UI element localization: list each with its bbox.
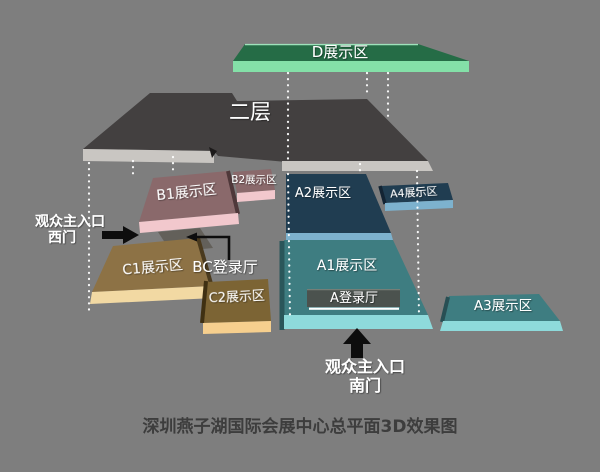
caption-title: 深圳燕子湖国际会展中心总平面3D效果图 bbox=[143, 416, 458, 437]
a3-front-face bbox=[440, 321, 563, 331]
a1-label: A1展示区 bbox=[317, 258, 377, 274]
bc-lobby-label: BC登录厅 bbox=[192, 258, 258, 276]
south-entrance-label-line1: 观众主入口 bbox=[325, 357, 405, 376]
site-plan-3d-render: D展示区 二层 B1展示区 B2展示区 A2展示区 A4展示区 A1展示区 A登… bbox=[0, 0, 600, 472]
a-lobby-underline bbox=[309, 308, 399, 310]
second-floor-front-left bbox=[83, 149, 214, 163]
a2-label: A2展示区 bbox=[295, 186, 351, 201]
b1-hall-slab bbox=[139, 171, 239, 233]
second-floor-label: 二层 bbox=[229, 100, 271, 124]
c2-hall-slab bbox=[202, 279, 271, 334]
d-hall-front-face bbox=[233, 61, 469, 72]
west-entrance-label-line2: 西门 bbox=[48, 229, 76, 246]
south-entrance-label-line2: 南门 bbox=[349, 376, 381, 395]
d-hall-label: D展示区 bbox=[312, 43, 369, 61]
west-entrance-label-line1: 观众主入口 bbox=[35, 213, 105, 230]
a3-label: A3展示区 bbox=[474, 298, 532, 314]
c2-label: C2展示区 bbox=[208, 289, 265, 307]
c2-front-face bbox=[203, 321, 271, 334]
a1-front-face bbox=[284, 315, 433, 329]
site-plan-canvas: D展示区 二层 B1展示区 B2展示区 A2展示区 A4展示区 A1展示区 A登… bbox=[0, 0, 600, 472]
b2-label: B2展示区 bbox=[231, 174, 276, 186]
a2-front-face bbox=[286, 233, 393, 240]
second-floor-front-right bbox=[282, 161, 433, 171]
a-lobby-label: A登录厅 bbox=[330, 291, 378, 306]
